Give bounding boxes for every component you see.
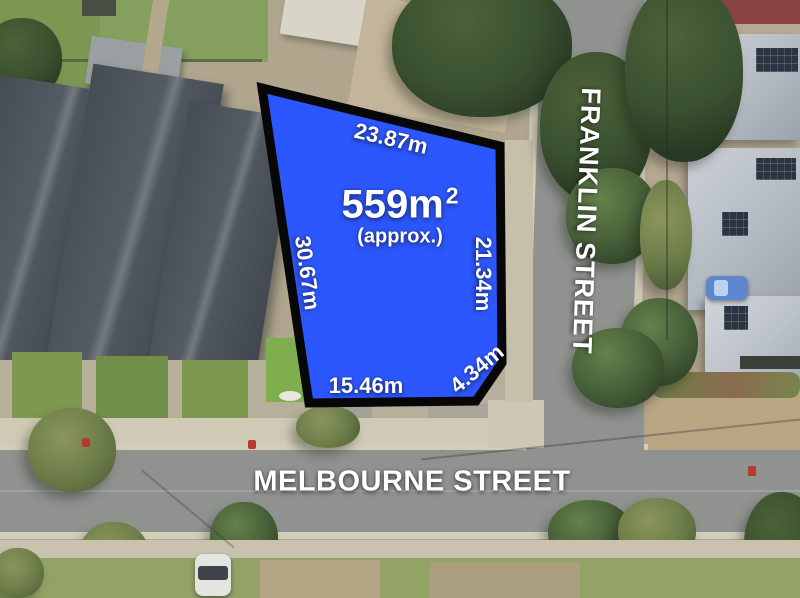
dimension-label-bottom: 15.46m (329, 373, 404, 399)
parcel-area-label: 559m2 (approx.) (341, 185, 458, 248)
area-qualifier: (approx.) (341, 226, 458, 248)
area-superscript: 2 (446, 183, 459, 209)
area-value: 559m2 (341, 185, 458, 225)
parcel-overlay (0, 0, 800, 598)
dimension-label-right: 21.34m (470, 237, 496, 312)
street-label-melbourne: MELBOURNE STREET (253, 466, 570, 499)
aerial-map: 23.87m 30.67m 21.34m 15.46m 4.34m 559m2 … (0, 0, 800, 598)
